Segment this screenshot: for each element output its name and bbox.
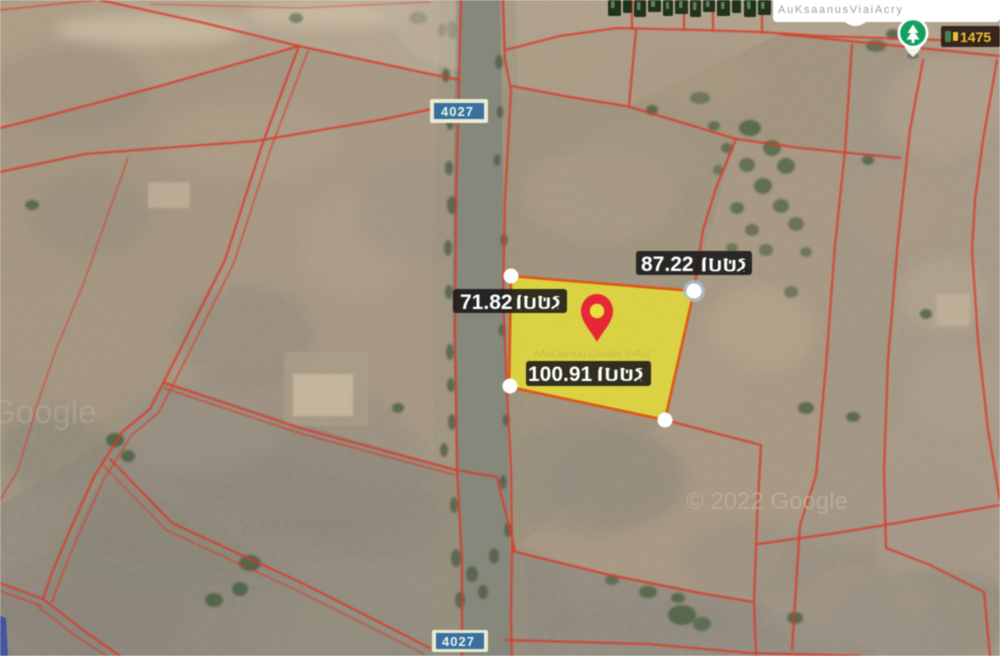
svg-text:© 2022 Google: © 2022 Google <box>686 488 848 515</box>
svg-text:© 2022 Google: © 2022 Google <box>218 514 366 539</box>
svg-text:100.91: 100.91 <box>528 363 593 386</box>
svg-text:nAuiJaniuo.iJaoiae (nAu): nAuiJaniuo.iJaoiae (nAu) <box>534 348 651 360</box>
svg-text:4027: 4027 <box>442 634 475 649</box>
svg-text:71.82: 71.82 <box>460 291 513 314</box>
svg-text:87.22: 87.22 <box>641 253 694 276</box>
svg-text:Google: Google <box>0 393 96 430</box>
svg-text:4027: 4027 <box>441 104 474 119</box>
svg-text:1475: 1475 <box>960 29 991 45</box>
svg-text:AuKsaanusViaiAcry: AuKsaanusViaiAcry <box>778 4 903 16</box>
